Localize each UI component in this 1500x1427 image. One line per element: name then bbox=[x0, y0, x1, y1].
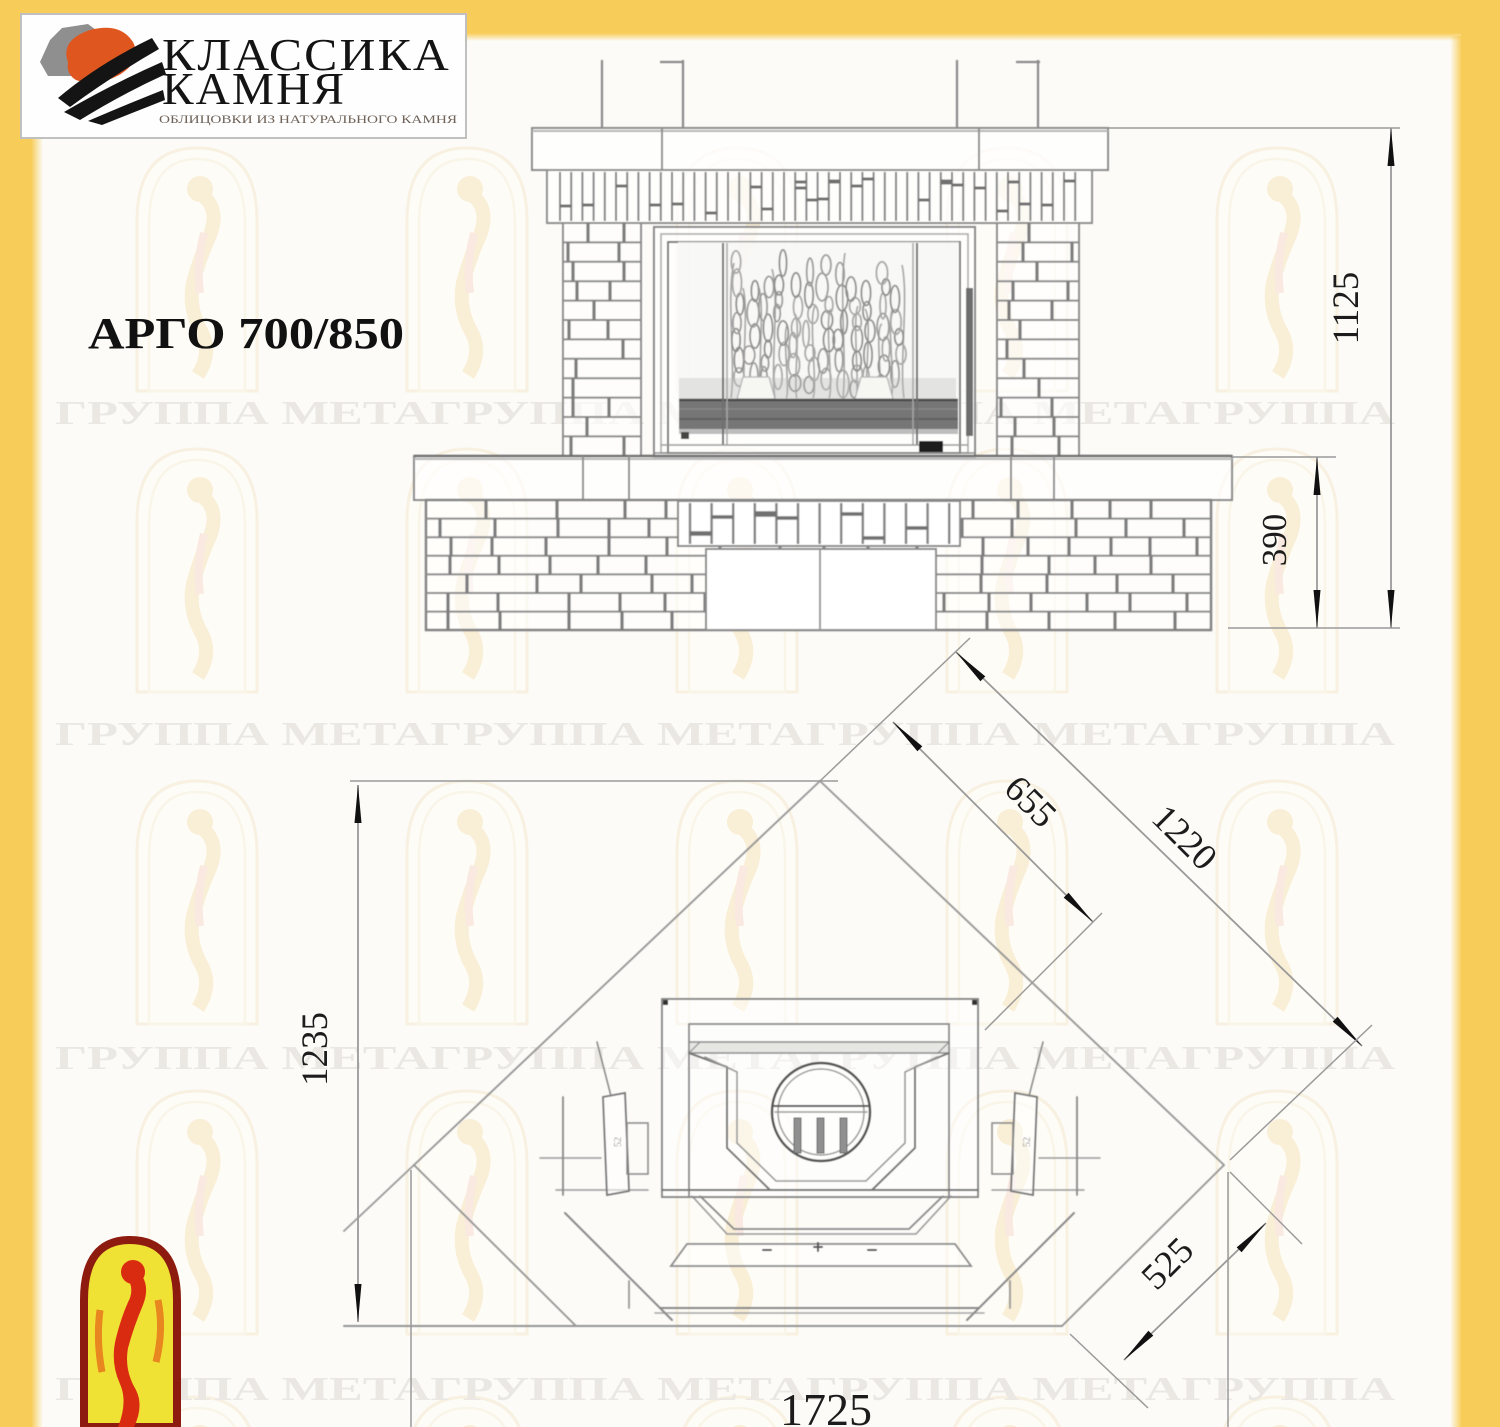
svg-text:ОБЛИЦОВКИ ИЗ НАТУРАЛЬНОГО КАМН: ОБЛИЦОВКИ ИЗ НАТУРАЛЬНОГО КАМНЯ bbox=[159, 114, 457, 126]
svg-text:АРГО 700/850: АРГО 700/850 bbox=[88, 309, 404, 358]
svg-text:1235: 1235 bbox=[295, 1012, 336, 1086]
svg-text:ГРУППА МЕТАГРУППА МЕТАГРУППА М: ГРУППА МЕТАГРУППА МЕТАГРУППА МЕТАГРУППА bbox=[55, 716, 1396, 753]
svg-text:52: 52 bbox=[613, 1137, 624, 1147]
svg-text:КАМНЯ: КАМНЯ bbox=[162, 63, 346, 114]
svg-text:390: 390 bbox=[1255, 514, 1294, 567]
svg-text:ГРУППА МЕТАГРУППА МЕТАГРУППА М: ГРУППА МЕТАГРУППА МЕТАГРУППА МЕТАГРУППА bbox=[55, 1371, 1396, 1408]
svg-text:1125: 1125 bbox=[1326, 272, 1367, 345]
svg-text:52: 52 bbox=[1022, 1137, 1033, 1147]
svg-text:1725: 1725 bbox=[780, 1384, 872, 1427]
